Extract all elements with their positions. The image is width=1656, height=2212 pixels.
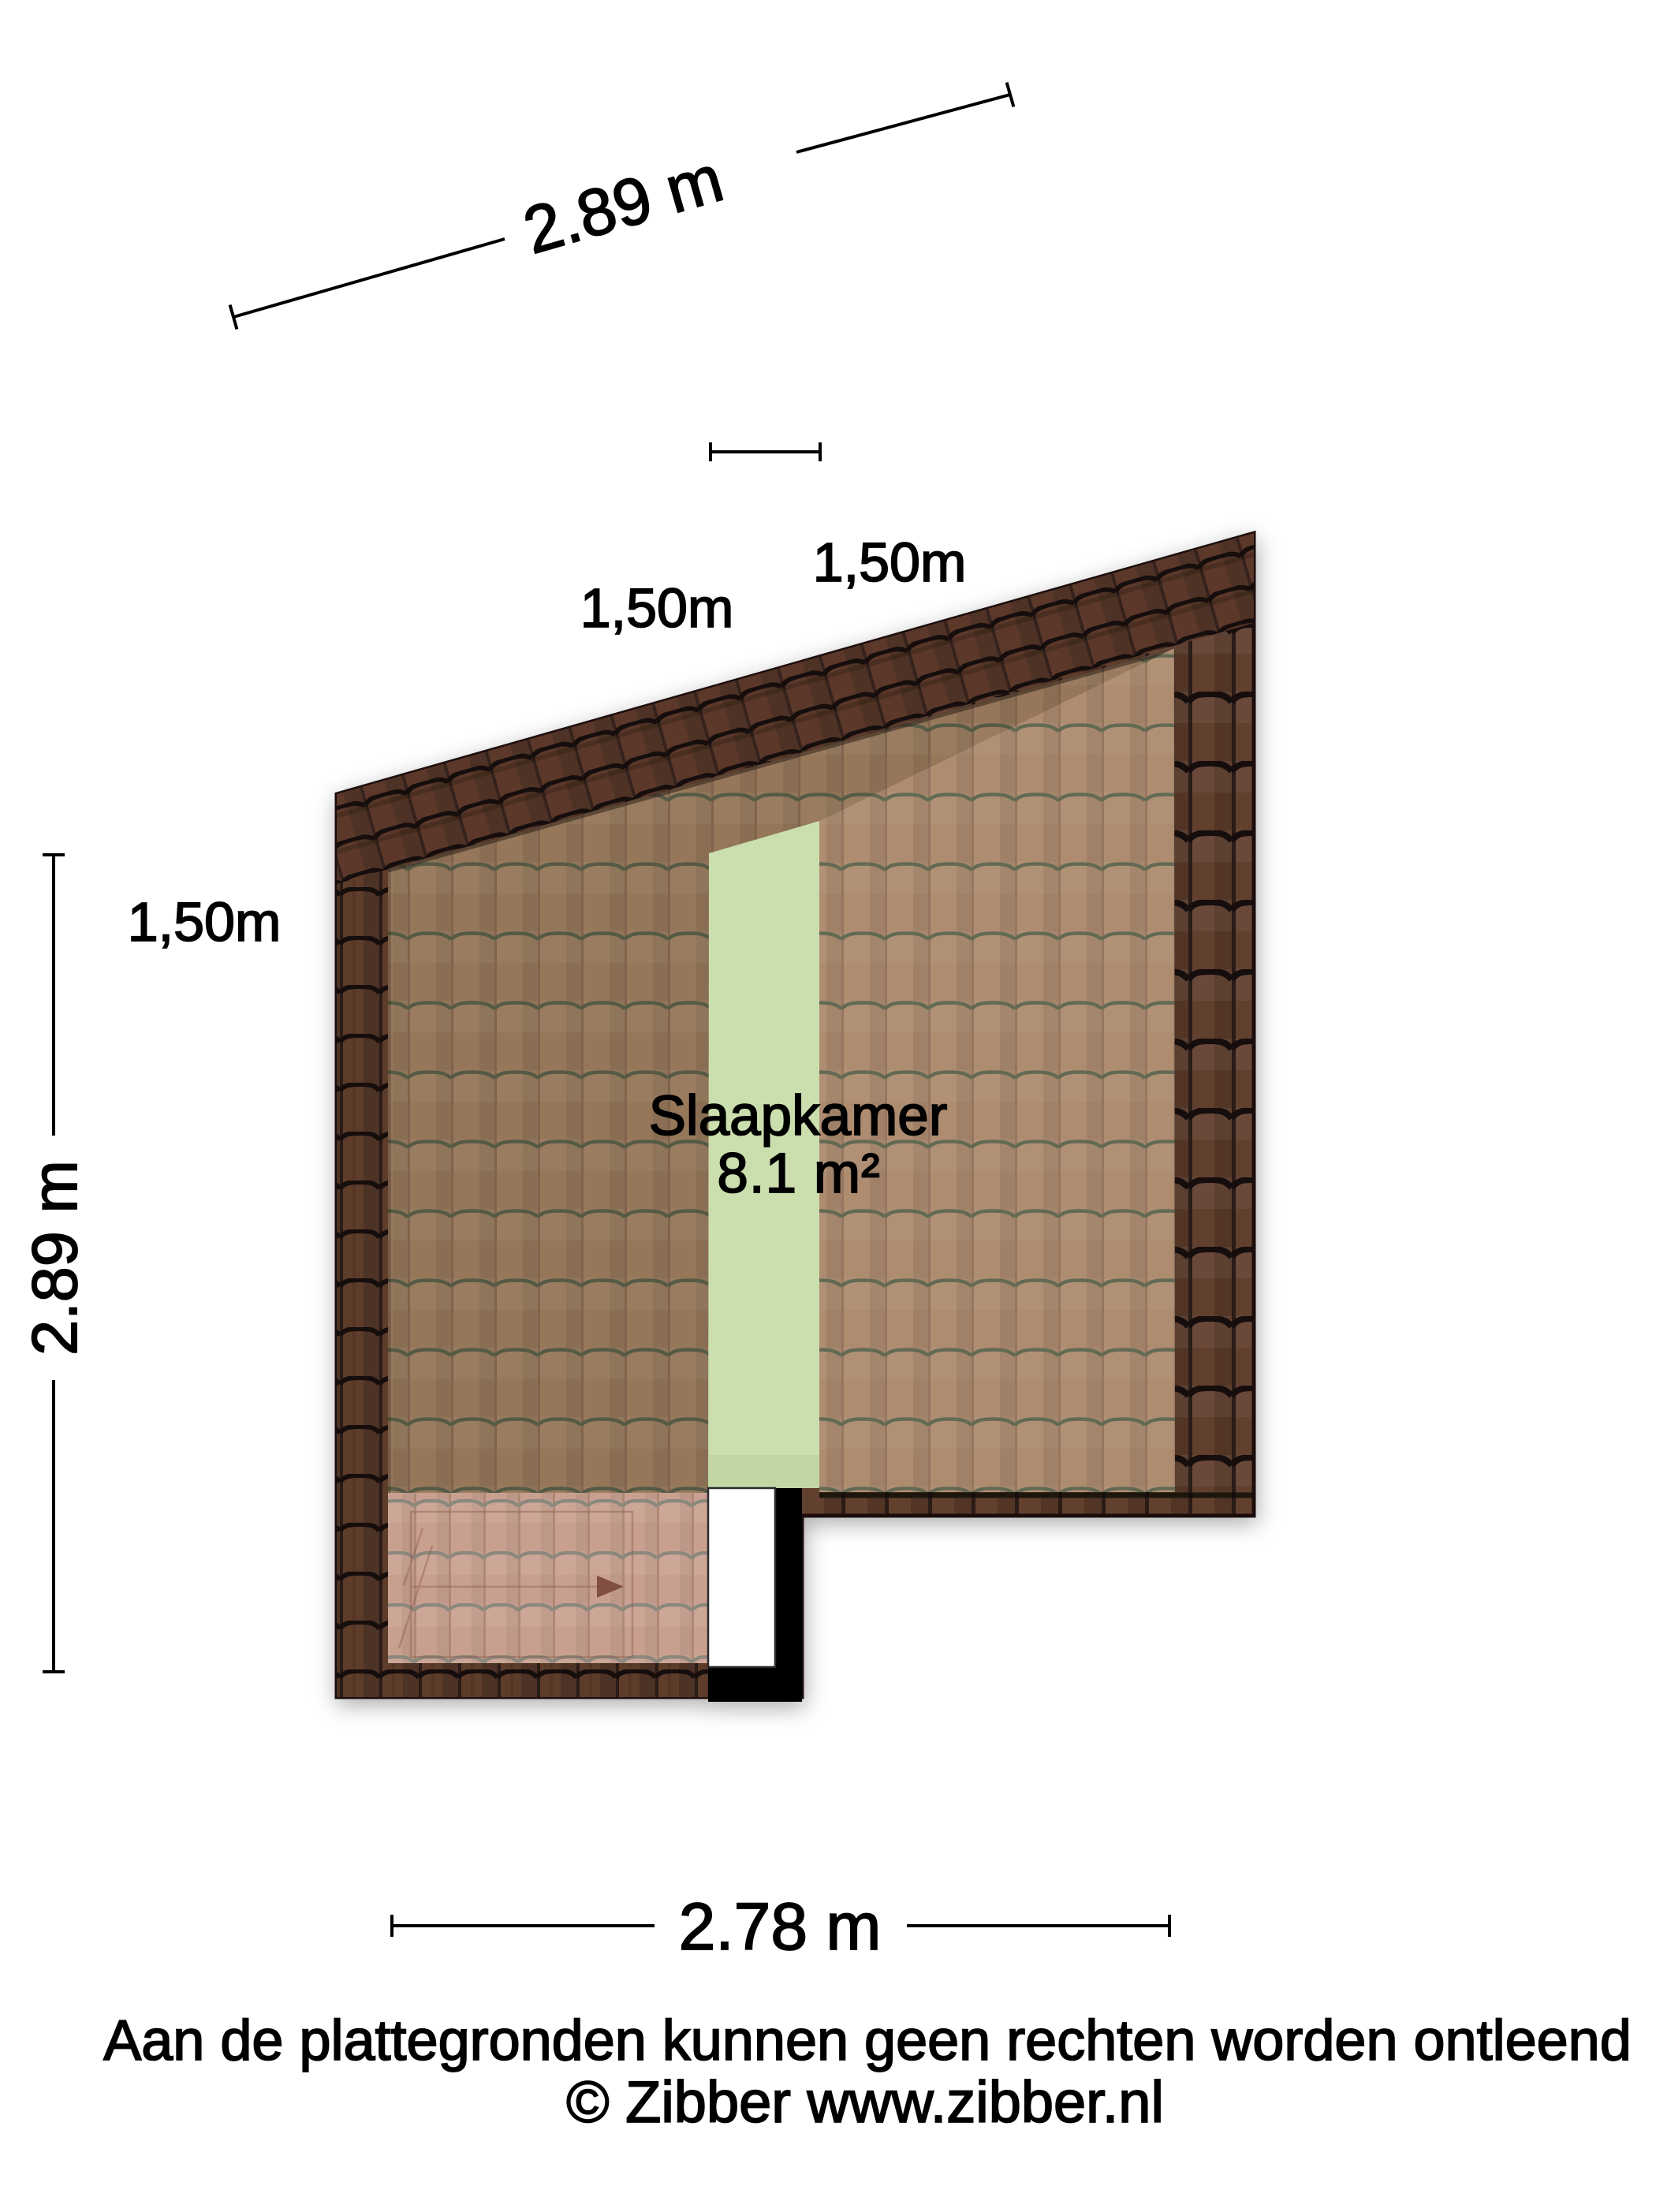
svg-text:2.89 m: 2.89 m [516, 140, 731, 267]
svg-text:8.1 m²: 8.1 m² [717, 1143, 880, 1205]
svg-text:2.89 m: 2.89 m [20, 1160, 91, 1356]
svg-text:2.78 m: 2.78 m [679, 1889, 882, 1964]
svg-text:Aan de plattegronden kunnen ge: Aan de plattegronden kunnen geen rechten… [103, 2009, 1632, 2072]
svg-text:1,50m: 1,50m [580, 577, 734, 639]
svg-text:Slaapkamer: Slaapkamer [649, 1085, 948, 1147]
svg-text:© Zibber www.zibber.nl: © Zibber www.zibber.nl [566, 2069, 1164, 2135]
svg-text:1,50m: 1,50m [128, 891, 282, 953]
svg-text:1,50m: 1,50m [813, 532, 967, 593]
